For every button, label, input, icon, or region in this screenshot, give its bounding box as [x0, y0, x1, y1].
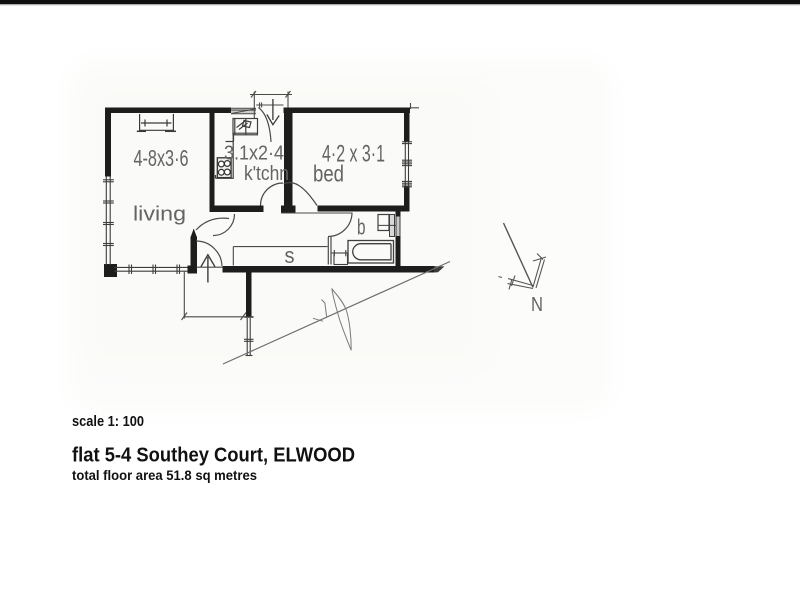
- svg-text:scale 1: 100: scale 1: 100: [72, 413, 144, 430]
- svg-text:s: s: [285, 243, 295, 268]
- svg-text:flat 5-4 Southey Court, ELWOOD: flat 5-4 Southey Court, ELWOOD: [72, 444, 355, 467]
- svg-text:total floor area 51.8 sq metre: total floor area 51.8 sq metres: [72, 468, 257, 483]
- svg-text:4-8x3·6: 4-8x3·6: [134, 145, 189, 171]
- svg-text:N: N: [531, 293, 543, 316]
- svg-text:b: b: [357, 215, 366, 240]
- svg-text:k'tchn: k'tchn: [244, 163, 289, 185]
- svg-text:3.1x2·4: 3.1x2·4: [224, 142, 284, 165]
- svg-text:living: living: [133, 204, 186, 226]
- svg-text:bed: bed: [313, 161, 344, 187]
